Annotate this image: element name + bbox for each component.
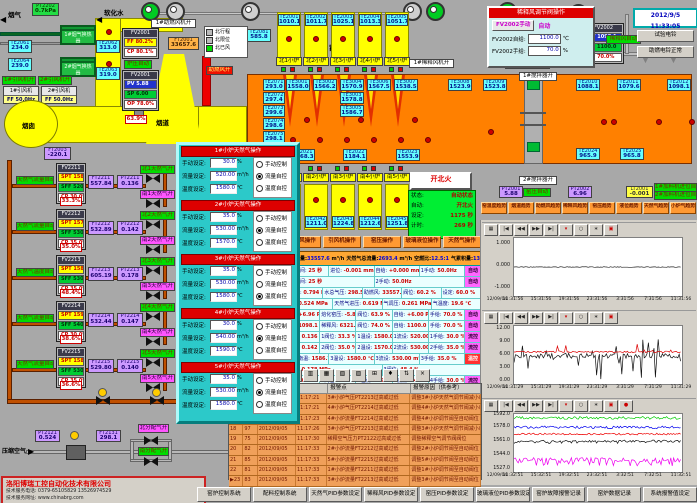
forward-icon[interactable]: ▶▶: [529, 224, 543, 236]
popup-field-input[interactable]: 1590.0: [210, 346, 237, 356]
legend-icon[interactable]: ♦: [383, 369, 398, 382]
popup-field-input[interactable]: 1580.0: [210, 184, 237, 194]
popup-field-input[interactable]: 530.00: [210, 279, 237, 289]
popup-field-label: 温度设定:: [182, 401, 206, 409]
cursor-icon[interactable]: ▾: [559, 312, 573, 324]
burner-ind-green: [389, 67, 394, 72]
param-value: 25 秒: [307, 279, 322, 285]
radio-label: 手动控制: [265, 268, 287, 276]
radio-icon[interactable]: [256, 347, 263, 354]
pipe-graphic: [527, 80, 540, 90]
param-cell: 稀释风: 6321.8 m³/h: [320, 321, 356, 331]
view-shade-icon[interactable]: ▨: [351, 369, 366, 382]
marker-icon[interactable]: ∗: [589, 312, 603, 324]
nav-button[interactable]: 窑压PID参数设定: [420, 487, 474, 502]
zoom-icon[interactable]: ○: [574, 312, 588, 324]
export-icon[interactable]: ▣: [604, 400, 618, 412]
mode-chip: 流控: [465, 343, 481, 353]
dilution-valve-panel: 稀释风调节阀操作 FV2002手动 自动 FV2002自给:1100.0℃FV2…: [487, 6, 595, 68]
popup-field-unit: ℃: [237, 185, 243, 191]
y-axis-tick: 6.00: [482, 352, 510, 357]
tag-TE3003: TE30031578.8: [340, 92, 364, 104]
sensor-dot: [286, 36, 292, 42]
tag-value: 965.8: [621, 154, 643, 160]
tag-FT2211: FT2211557.84: [88, 175, 114, 189]
ops-button[interactable]: 玻璃液位操作: [403, 236, 441, 248]
param-cell: 进位: -0.001 mm: [329, 266, 374, 276]
dilution-fan1-status: 1#稀释风机开: [409, 59, 454, 68]
stirrer1-status: 1#搅拌器开: [519, 72, 557, 81]
valve-handle-icon: [98, 388, 107, 397]
valve-position: 35.0%: [60, 243, 82, 252]
radio-icon[interactable]: [256, 185, 263, 192]
tag-value: 585.8: [248, 35, 270, 41]
view-columns-icon[interactable]: ▥: [303, 369, 318, 382]
flow-arrow: ◀: [96, 16, 102, 24]
param-value: 0.619 MPa: [361, 301, 383, 307]
table-icon[interactable]: ⊞: [367, 369, 382, 382]
table-row[interactable]: 20822012/09/0511:17:332#小炉流量FT2212过高或过低调…: [229, 445, 481, 455]
trend-button[interactable]: 烟道趋势: [508, 202, 534, 214]
valve-icon[interactable]: [144, 457, 158, 466]
trend-chart-3: ▦|◀◀◀▶▶▶|▾○∗▣●1592.01578.01561.01544.015…: [482, 398, 696, 485]
param-cell: 1流设: 520.00 m³/h: [393, 332, 429, 342]
valve-icon[interactable]: [96, 396, 110, 405]
stop-icon[interactable]: ●: [619, 400, 633, 412]
param-label: 2温设:: [357, 345, 372, 351]
radio-icon[interactable]: [256, 293, 263, 300]
popup-field-input[interactable]: 35.0: [210, 212, 237, 222]
x-axis-tick: 11:32:51: [668, 473, 694, 478]
tag-TE2071: TE2071293.0: [263, 79, 285, 91]
forward-icon[interactable]: ▶▶: [529, 400, 543, 412]
gas-auto-status: 天然气流量自动: [16, 176, 54, 185]
valve-panel-row: SPT 1580.0: [58, 357, 84, 366]
radio-label: 温度自控: [265, 184, 287, 192]
param-value: 63.9 %: [369, 312, 390, 318]
nav-button[interactable]: 窑炉控制系统: [197, 487, 251, 502]
param-value: 1580.0 ℃: [372, 334, 392, 340]
tag-value: 1212.6: [360, 222, 380, 228]
y-axis-tick: 1561.0: [482, 438, 510, 443]
zoom-icon[interactable]: ○: [574, 224, 588, 236]
pipe-graphic: [7, 160, 12, 403]
param-label: 阀位:: [357, 312, 369, 318]
popup-field-input[interactable]: 540.00: [210, 333, 237, 343]
popup-radio-group: 手动控制流量自控温度自控: [253, 157, 292, 198]
param-value: +0.000 mm: [387, 268, 420, 274]
y-axis-tick: 9.00: [482, 339, 510, 344]
param-value: 6321.8 m³/h: [338, 323, 357, 329]
popup-radio-group: 手动控制流量自控温度自控: [253, 265, 292, 306]
popup-radio-group: 手动控制流量自控温度自控: [253, 211, 292, 252]
radio-icon[interactable]: [256, 335, 263, 342]
param-value: +6.00 Pa: [405, 312, 429, 318]
burner-ind-red: [398, 67, 403, 72]
radio-option[interactable]: 流量自控: [254, 332, 291, 344]
bottom-nav-bar: 窑炉控制系统配料控制系统天然气PID参数设定稀释风PID参数设定窑压PID参数设…: [197, 485, 697, 503]
table-row[interactable]: 21852012/09/0511:17:335#小炉流量FT2215过高或过低调…: [229, 456, 481, 466]
totals-strip: 助燃风量:33557.6 m³/h天然气总流量:2693.4 m³/h空燃比:1…: [283, 251, 484, 266]
sensor-dot: [106, 29, 112, 35]
param-value: 74.0 %: [369, 323, 390, 329]
param-cell: 设定: 60.0 %: [442, 288, 481, 298]
cursor-icon[interactable]: ▾: [559, 224, 573, 236]
alarm-cell: 11:17:30: [296, 435, 327, 444]
export-icon[interactable]: ▣: [604, 312, 618, 324]
clear-icon[interactable]: ×: [415, 369, 430, 382]
param-label: 2阀位:: [321, 345, 336, 351]
nav-button[interactable]: 稀释风PID参数设定: [364, 487, 418, 502]
radio-icon[interactable]: [256, 281, 263, 288]
gas-auto-status: 天然气流量自动: [16, 222, 54, 231]
alarm-cell: 82: [243, 445, 257, 454]
alarm-cell: 调整3#小炉天然气调节阀减小或关阀: [410, 425, 481, 434]
y-axis-tick: 1527.0: [482, 466, 510, 471]
valve-icon[interactable]: [146, 199, 160, 208]
nav-button[interactable]: 系统报警值设定: [643, 487, 697, 502]
north-gas-open: 北4天然气开: [140, 303, 175, 312]
tag-TE2043: TE20431224.8: [332, 216, 354, 228]
radio-option[interactable]: 流量自控: [254, 386, 291, 398]
valve-position: 38.6%: [60, 335, 82, 344]
alarm-cell: 97: [243, 425, 257, 434]
rewind-icon[interactable]: ◀◀: [514, 312, 528, 324]
radio-option[interactable]: 手动控制: [254, 320, 291, 332]
fv2002-manual-button[interactable]: FV2002手动: [492, 20, 534, 31]
gas-pipe: [163, 307, 167, 345]
radio-option[interactable]: 温度自控: [254, 182, 291, 194]
valve-panel-tag: FV2211: [58, 165, 84, 172]
popup-field-label: 流量设定:: [182, 226, 206, 234]
exchanger-1: 1#烟气换热器: [60, 25, 96, 45]
trend-button[interactable]: 助燃风趋势: [535, 202, 561, 214]
x-axis-tick: 23:31:29: [584, 385, 610, 390]
ops-button[interactable]: 引风机操作: [323, 236, 361, 248]
chart-toolbar: ▦|◀◀◀▶▶▶|▾○∗▣: [484, 312, 618, 324]
table-row[interactable]: 18972012/09/0511:17:263#小炉气压PT2213过高或过低调…: [229, 425, 481, 435]
popup-field-label: 温度设定:: [182, 293, 206, 301]
fan-box-2: 2#引风机FF 50.0Hz: [41, 86, 77, 104]
zoom-icon[interactable]: ○: [574, 400, 588, 412]
nav-button[interactable]: 配料控制系统: [253, 487, 307, 502]
marker-icon[interactable]: ∗: [589, 400, 603, 412]
tag-TE2001: TE20011010.1: [278, 14, 300, 26]
popup-field-input[interactable]: 1580.0: [210, 292, 237, 302]
burner-ind-green: [389, 166, 394, 171]
view-fill-icon[interactable]: ▧: [335, 369, 350, 382]
sensor-dot: [601, 119, 607, 125]
valve-icon[interactable]: [146, 245, 160, 254]
mode-chip: 温控: [465, 354, 481, 364]
fv2002-auto-label[interactable]: 自动: [538, 21, 550, 30]
gas-pipe: [163, 261, 167, 299]
popup-section-title: 1#小炉天然气操作: [181, 146, 295, 157]
damper-indicator: [206, 29, 213, 36]
last-icon[interactable]: ▶|: [544, 224, 558, 236]
status-row: 状态:自动状态: [411, 192, 473, 202]
radio-icon[interactable]: [256, 269, 263, 276]
damper-label: 北限位: [215, 36, 230, 44]
burner-ind-green: [362, 67, 367, 72]
valve-icon[interactable]: [150, 396, 164, 405]
popup-field-input[interactable]: 1580.0: [210, 400, 237, 410]
radio-option[interactable]: 手动控制: [254, 266, 291, 278]
radio-option[interactable]: 手动控制: [254, 374, 291, 386]
north-dist-valve-status: 北分配气开: [138, 424, 169, 433]
radio-icon[interactable]: [256, 377, 263, 384]
param-value: 60.0 %: [454, 290, 475, 296]
alarm-cell: 11:17:33: [296, 466, 327, 475]
radio-option[interactable]: 流量自控: [254, 278, 291, 290]
company-name: 洛阳博瑞工控自动化技术有限公司: [6, 479, 201, 489]
trend-button[interactable]: 天然气趋势: [643, 202, 669, 214]
charger2-auto: 2#加料机进位自动: [654, 191, 697, 200]
forward-icon[interactable]: ▶▶: [529, 312, 543, 324]
gas-auto-status: 天然气流量自动: [16, 360, 54, 369]
tag-TE2081: TE2081585.8: [247, 29, 271, 42]
radio-option[interactable]: 温度自控: [254, 236, 291, 248]
tag-TE2061: TE2061234.0: [8, 40, 32, 53]
param-value: 1100.0 ℃: [405, 323, 429, 329]
tag-PT2121: PT21210.524: [35, 430, 60, 442]
burner-label: 南2小炉: [303, 173, 329, 182]
cursor-icon[interactable]: ▾: [559, 400, 573, 412]
param-cell: 2阀位: 35.0 %: [320, 343, 356, 353]
valve-icon[interactable]: [146, 358, 160, 367]
total-item: 空燃比:12.5:1: [414, 255, 449, 262]
dilution-field-unit: %: [563, 48, 568, 54]
radio-icon[interactable]: [256, 239, 263, 246]
param-value: 25 秒: [307, 268, 322, 274]
burner-label: 南3小炉: [330, 173, 356, 182]
grid-icon[interactable]: ▦: [484, 400, 498, 412]
radio-icon[interactable]: [256, 227, 263, 234]
tag-value: 1224.8: [333, 222, 353, 228]
radio-icon[interactable]: [256, 215, 263, 222]
param-label: 2手动:: [376, 279, 391, 285]
popup-field-input[interactable]: 35.0: [210, 266, 237, 276]
tag-value: 965.9: [577, 154, 599, 160]
burner-label: 北5小炉: [384, 57, 410, 66]
rewind-icon[interactable]: ◀◀: [514, 224, 528, 236]
compressed-air-label: 压缩空气: [2, 446, 26, 455]
x-axis-tick: 3:32:51: [612, 473, 638, 478]
popup-field-label: 温度设定:: [182, 185, 206, 193]
valve-icon[interactable]: [146, 291, 160, 300]
alarm-cell: 11:17:21: [296, 394, 327, 403]
param-label: 气调压:: [384, 301, 401, 307]
radio-icon[interactable]: [256, 161, 263, 168]
tag-value: 1567.5: [368, 85, 390, 91]
trend-button[interactable]: 液位趋势: [616, 202, 642, 214]
alarm-cell: 83: [243, 476, 257, 485]
radio-label: 手动控制: [265, 214, 287, 222]
ops-button[interactable]: 天然气操作: [443, 236, 481, 248]
last-icon[interactable]: ▶|: [544, 312, 558, 324]
param-label: 2流设:: [394, 345, 409, 351]
param-value: -5.887 Pa: [343, 312, 357, 318]
first-icon[interactable]: |◀: [499, 312, 513, 324]
param-label: 3手给:: [421, 356, 436, 362]
popup-field-input[interactable]: 35.0: [210, 374, 237, 384]
alarm-header-cell: 报警点: [328, 384, 411, 394]
param-value: 35.0 %: [445, 345, 465, 351]
valve-icon[interactable]: [146, 337, 160, 346]
burner-gas-popup: 1#小炉天然气操作手动设定:30.0%流量设定:520.00m³/h温度设定:1…: [176, 142, 300, 424]
tag-TE2005: TE20051051.7: [386, 14, 408, 26]
damper-row: 北已风: [206, 44, 246, 52]
param-value: 0.524 MPa: [297, 301, 328, 307]
popup-field-input[interactable]: 30.0: [210, 158, 237, 168]
radio-option[interactable]: 温度自控: [254, 344, 291, 356]
valve-icon[interactable]: [146, 266, 160, 275]
grid-icon[interactable]: ▦: [484, 224, 498, 236]
param-cell: 1阀位: 33.3 %: [320, 332, 356, 342]
valve-icon[interactable]: [146, 220, 160, 229]
tag-value: 6.96: [569, 192, 591, 198]
sensor-dot: [656, 119, 662, 125]
grid-icon[interactable]: ▦: [484, 312, 498, 324]
ops-button[interactable]: 窑压操作: [363, 236, 401, 248]
first-icon[interactable]: |◀: [499, 224, 513, 236]
tag-FT2213: FT2213605.19: [88, 267, 114, 281]
valve-icon[interactable]: [144, 436, 158, 445]
popup-field-input[interactable]: 530.00: [210, 387, 237, 397]
nav-button[interactable]: 窑炉故障报警记录: [532, 487, 586, 502]
radio-option[interactable]: 手动控制: [254, 212, 291, 224]
radio-option[interactable]: 温度自控: [254, 290, 291, 302]
trend-button[interactable]: 窑压趋势: [589, 202, 615, 214]
tag-PT2002: PT20026.96: [568, 186, 592, 198]
damper-row: 北限位: [206, 36, 246, 44]
datetime-display: 2012/9/5 11:33:05: [633, 8, 697, 28]
fire-north-button[interactable]: 开北火: [410, 172, 472, 190]
radio-icon[interactable]: [256, 173, 263, 180]
total-unit: m³/h: [330, 256, 345, 262]
first-icon[interactable]: |◀: [499, 400, 513, 412]
company-phone: 技术服务电话: 0379-65105829 13526974529: [6, 489, 201, 496]
tag-value: 1098.1: [668, 85, 690, 91]
dilution-field-input[interactable]: 1100.0: [528, 34, 561, 44]
tag-TE2012: TE20121098.1: [667, 79, 691, 91]
chart-plot: [513, 413, 683, 473]
trend-button[interactable]: 稀释风趋势: [562, 202, 588, 214]
popup-field-unit: m³/h: [237, 172, 249, 178]
param-label: 1手给:: [430, 334, 445, 340]
sort-icon[interactable]: ⇅: [399, 369, 414, 382]
dilution-field-unit: ℃: [563, 36, 569, 42]
table-row[interactable]: ▶23832012/09/0511:17:333#小炉流量FT2213过高或过低…: [229, 476, 481, 486]
pipe-graphic: [527, 142, 540, 152]
param-row: 气压力: 0.794 MPa水总气压: 298.5 KPa助燃风: 33557.…: [284, 288, 481, 299]
popup-field-input[interactable]: 1570.0: [210, 238, 237, 248]
valve-icon[interactable]: [146, 312, 160, 321]
radio-label: 温度自控: [265, 292, 287, 300]
radio-icon[interactable]: [256, 323, 263, 330]
tag-value: 297.4: [264, 98, 284, 104]
status-row: 自动:开北火: [411, 202, 473, 212]
x-axis-tick: 11:31:56: [668, 297, 694, 302]
alarm-cell: 2012/09/05: [258, 466, 296, 475]
valve-handle-icon: [70, 431, 79, 440]
trend-chart-2: ▦|◀◀◀▶▶▶|▾○∗▣12.009.006.003.000.0012/09/…: [482, 310, 696, 397]
param-value: +6.96 Pa: [297, 312, 321, 318]
nav-button[interactable]: 天然气PID参数设定: [309, 487, 363, 502]
table-row[interactable]: 22812012/09/0511:17:331#小炉流量FT2211过高或过低调…: [229, 466, 481, 476]
status-label: 设定:: [411, 212, 424, 222]
stirrer2-status: 2#搅拌器开: [519, 176, 557, 185]
tag-value: 298.6: [264, 124, 284, 130]
alarm-cell: 4#小炉气压PT2214过高或过低: [327, 404, 411, 413]
tag-PT2001: PT20015.88: [499, 186, 523, 198]
param-value: 520.00 m³/h: [408, 334, 428, 340]
nav-button[interactable]: 玻璃液位PID参数设定: [476, 487, 530, 502]
tag-PT2215: PT22150.140: [117, 359, 143, 373]
trend-button[interactable]: 窑温度趋势: [481, 202, 507, 214]
top-button-1[interactable]: 试验电铃: [637, 30, 694, 42]
x-axis-tick: 3:31:29: [612, 385, 638, 390]
sensor-dot: [412, 117, 418, 123]
param-value: 298.5 KPa: [346, 290, 363, 296]
dilution-field-input[interactable]: 70.0: [528, 46, 561, 56]
tag-TE2044: TE20441212.6: [359, 216, 381, 228]
north-gas-open: 北3天然气开: [140, 257, 175, 266]
last-icon[interactable]: ▶|: [544, 400, 558, 412]
radio-option[interactable]: 流量自控: [254, 170, 291, 182]
marker-icon[interactable]: ∗: [589, 224, 603, 236]
param-label: 1阀位:: [321, 334, 336, 340]
alarm-cell: 81: [243, 466, 257, 475]
nav-button[interactable]: 窑炉数据记录: [587, 487, 641, 502]
popup-section-2: 2#小炉天然气操作手动设定:35.0%流量设定:530.00m³/h温度设定:1…: [181, 200, 295, 251]
tag-FT2001: FT200133657.6: [168, 37, 199, 50]
radio-option[interactable]: 温度自控: [254, 398, 291, 410]
tag-TE3006: TE30061567.5: [367, 79, 391, 91]
param-cell: 水总气压: 298.5 KPa: [323, 288, 362, 298]
tag-TE3004: TE30041570.9: [340, 79, 364, 91]
total-item: 天然气总流量:2693.4 m³/h: [346, 255, 412, 262]
export-icon[interactable]: ▣: [604, 224, 618, 236]
radio-icon[interactable]: [256, 389, 263, 396]
popup-section-title: 4#小炉天然气操作: [181, 308, 295, 319]
valve-position: 33.3%: [60, 197, 82, 206]
top-button-2[interactable]: 助燃电铃正常: [637, 46, 694, 58]
popup-field-input[interactable]: 30.0: [210, 320, 237, 330]
damper-label: 北已风: [215, 44, 230, 52]
radio-option[interactable]: 手动控制: [254, 158, 291, 170]
trend-button[interactable]: 小炉气趋势: [670, 202, 696, 214]
radio-icon[interactable]: [256, 401, 263, 408]
popup-field-input[interactable]: 520.00: [210, 171, 237, 181]
param-row: 3碹顶南温: 1586.7 ℃3温设: 1580.0 ℃3流设: 530.00 …: [284, 354, 481, 365]
rewind-icon[interactable]: ◀◀: [514, 400, 528, 412]
tag-value: 605.19: [89, 274, 113, 280]
pump-eye-icon: [170, 6, 177, 13]
table-row[interactable]: 19752012/09/0511:17:30稀释空气压力PT2122过高或过低调…: [229, 435, 481, 445]
param-label: 1手动:: [421, 268, 436, 274]
tag-FT2212: FT2212532.89: [88, 221, 114, 235]
param-cell: 3手给: 35.0 %: [420, 354, 465, 364]
tag-value: 1251.8: [387, 222, 407, 228]
param-cell: 1手动: 50.0Hz: [420, 266, 465, 276]
radio-option[interactable]: 流量自控: [254, 224, 291, 236]
valve-icon[interactable]: [146, 174, 160, 183]
popup-field-input[interactable]: 530.00: [210, 225, 237, 235]
view-grid-icon[interactable]: ▦: [319, 369, 334, 382]
gas-pipe: [163, 169, 167, 207]
alarm-cell: 2012/09/05: [258, 476, 296, 485]
